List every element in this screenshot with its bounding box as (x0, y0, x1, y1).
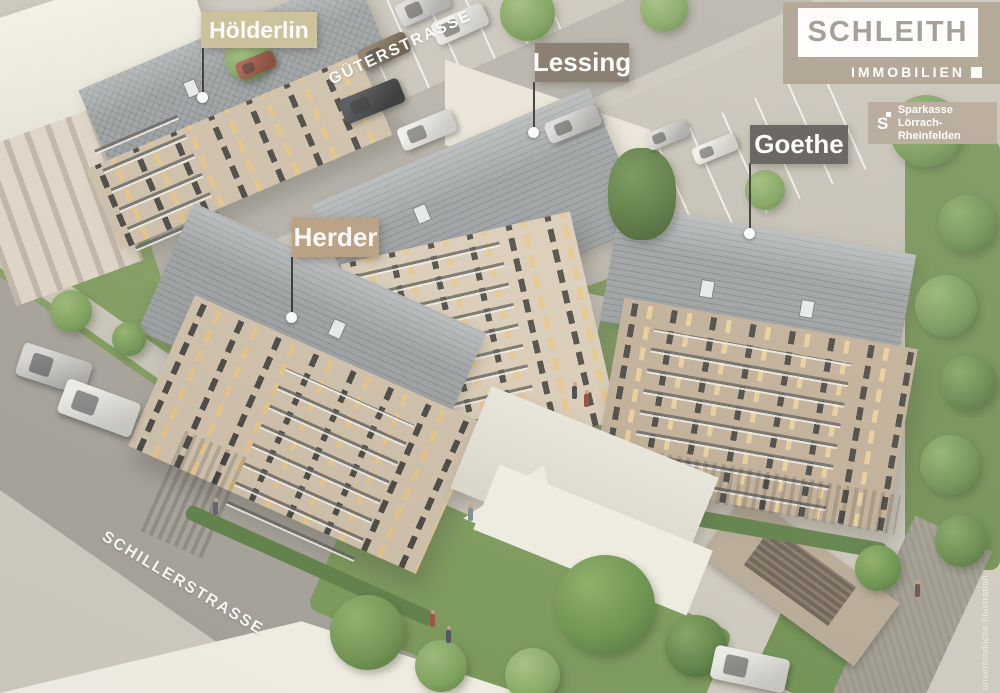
watermark-text: unverbindliche Illustration (980, 556, 990, 690)
architectural-rendering: GÜTERSTRASSE SCHILLERSTRASSE Hölderlin L… (0, 0, 1000, 693)
tree (920, 435, 980, 495)
sparkasse-s-icon: S (877, 111, 891, 135)
herder-marker-dot (286, 312, 297, 323)
hoelderlin-leader-line (202, 47, 204, 98)
sparkasse-line1: Sparkasse (898, 104, 953, 116)
goethe-leader-line (749, 163, 751, 234)
sparkasse-line2: Lörrach-Rheinfelden (898, 117, 961, 142)
tree (50, 290, 92, 332)
tree (915, 275, 977, 337)
sparkasse-text: Sparkasse Lörrach-Rheinfelden (898, 104, 997, 143)
lessing-leader-line (533, 82, 535, 133)
hoelderlin-marker-dot (197, 92, 208, 103)
person (915, 584, 920, 597)
tree (855, 545, 901, 591)
person (468, 508, 473, 521)
schleith-logo-block: SCHLEITH IMMOBILIEN (783, 2, 1000, 84)
tree (415, 640, 467, 692)
tree (745, 170, 785, 210)
tree (940, 355, 996, 411)
tree (555, 555, 655, 655)
goethe-marker-dot (744, 228, 755, 239)
label-lessing: Lessing (535, 43, 629, 82)
schleith-tagline: IMMOBILIEN (851, 64, 965, 80)
person (213, 502, 218, 515)
sparkasse-logo-block: S Sparkasse Lörrach-Rheinfelden (868, 102, 997, 144)
label-herder: Herder (292, 218, 379, 257)
schleith-square-icon (971, 67, 982, 78)
schleith-tagline-row: IMMOBILIEN (851, 64, 982, 80)
tree (330, 595, 405, 670)
schleith-wordmark: SCHLEITH (808, 16, 969, 49)
person (430, 614, 435, 627)
lessing-marker-dot (528, 127, 539, 138)
schleith-logo-box: SCHLEITH (798, 8, 978, 57)
tree (938, 195, 996, 253)
tree (112, 322, 146, 356)
label-hoelderlin: Hölderlin (201, 12, 317, 48)
tree (608, 148, 676, 240)
label-goethe: Goethe (750, 125, 848, 164)
person (446, 630, 451, 643)
person (572, 386, 577, 399)
herder-leader-line (291, 257, 293, 318)
person (584, 394, 589, 407)
